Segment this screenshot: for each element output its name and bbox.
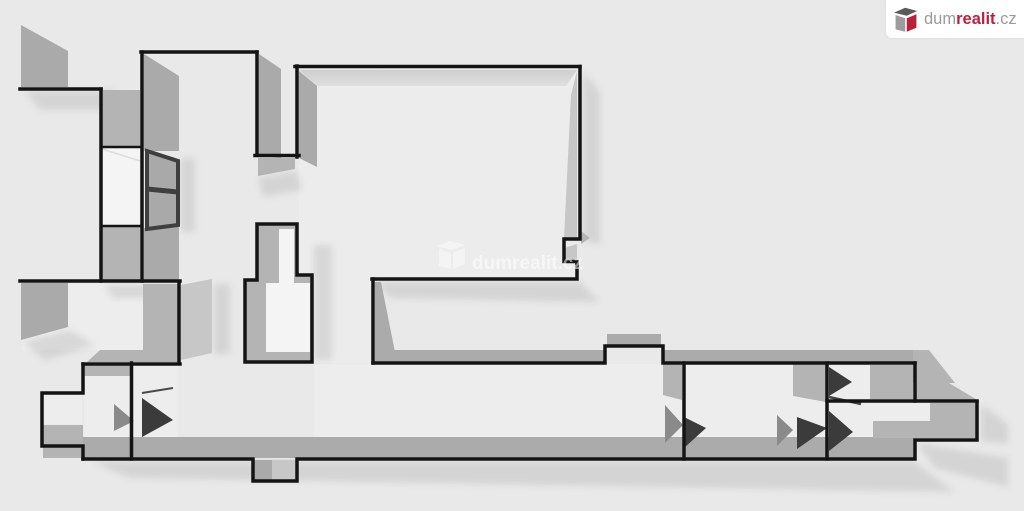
window [102,147,178,229]
floorplan-canvas: dumrealit.cz [0,0,1024,511]
dumrealit-cube-icon [437,241,465,269]
logo-text-cz: .cz [996,10,1017,28]
floorplan-stage: dumrealit.cz dumrealit.cz [0,0,1024,511]
watermark-text: dumrealit.cz [472,253,583,274]
window-frame-3d [147,151,178,229]
dumrealit-logo[interactable]: dumrealit.cz [886,0,1024,38]
logo-text: dumrealit.cz [924,11,1017,28]
logo-text-realit: realit [956,10,995,28]
dumrealit-cube-icon [894,4,918,34]
logo-text-dum: dum [924,10,956,28]
